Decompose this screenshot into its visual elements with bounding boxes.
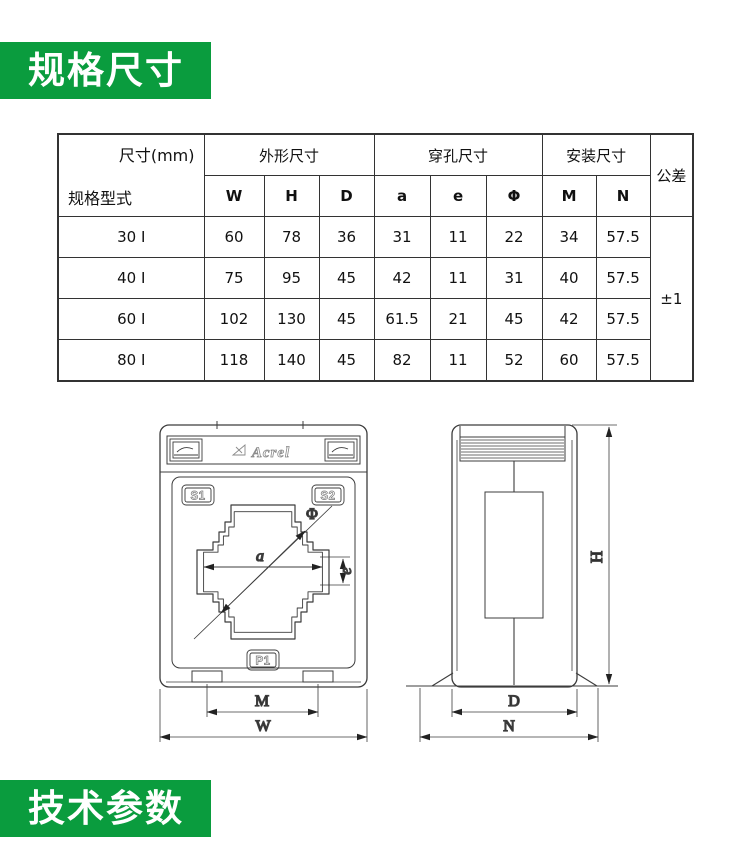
base-flange xyxy=(406,673,618,686)
terminal-hatch-band xyxy=(460,437,565,461)
value-cell: 36 xyxy=(319,217,374,258)
group-header-mounting: 安装尺寸 xyxy=(542,134,650,176)
value-cell: 60 xyxy=(542,340,596,382)
terminal-screw-right xyxy=(325,439,357,461)
value-cell: 11 xyxy=(430,217,486,258)
col-header-phi: Φ xyxy=(486,176,542,217)
value-cell: 11 xyxy=(430,340,486,382)
section-title-technical-parameters: 技术参数 xyxy=(0,780,211,837)
corner-label-model: 规格型式 xyxy=(68,185,132,209)
value-cell: 45 xyxy=(319,299,374,340)
brand-label: Acrel xyxy=(251,445,290,461)
col-header-a: a xyxy=(374,176,430,217)
col-header-d: D xyxy=(319,176,374,217)
value-cell: 57.5 xyxy=(596,340,650,382)
acrel-logo-icon xyxy=(233,445,245,455)
s2-label: S2 xyxy=(320,491,335,503)
table-row: 80 I 118 140 45 82 11 52 60 57.5 xyxy=(58,340,693,382)
col-header-e: e xyxy=(430,176,486,217)
dim-d-label: D xyxy=(508,693,520,710)
col-header-h: H xyxy=(264,176,319,217)
value-cell: 102 xyxy=(204,299,264,340)
table-row: 30 I 60 78 36 31 11 22 34 57.5 ±1 xyxy=(58,217,693,258)
side-view: H D N xyxy=(406,425,618,742)
dim-n-label: N xyxy=(503,718,515,735)
value-cell: 45 xyxy=(486,299,542,340)
s1-label: S1 xyxy=(190,491,205,503)
dim-e-label: e xyxy=(338,567,355,574)
table-row: 40 I 75 95 45 42 11 31 40 57.5 xyxy=(58,258,693,299)
value-cell: 130 xyxy=(264,299,319,340)
section-title-specifications: 规格尺寸 xyxy=(0,42,211,99)
col-header-n: N xyxy=(596,176,650,217)
core-section xyxy=(485,492,543,618)
technical-drawing: Acrel S1 S2 xyxy=(140,395,660,784)
value-cell: 21 xyxy=(430,299,486,340)
col-header-m: M xyxy=(542,176,596,217)
front-view: Acrel S1 S2 xyxy=(160,421,367,742)
value-cell: 57.5 xyxy=(596,299,650,340)
value-cell: 52 xyxy=(486,340,542,382)
terminal-screw-left xyxy=(170,439,202,461)
table-row: 60 I 102 130 45 61.5 21 45 42 57.5 xyxy=(58,299,693,340)
value-cell: 22 xyxy=(486,217,542,258)
value-cell: 45 xyxy=(319,340,374,382)
value-cell: 60 xyxy=(204,217,264,258)
value-cell: 57.5 xyxy=(596,258,650,299)
value-cell: 75 xyxy=(204,258,264,299)
value-cell: 140 xyxy=(264,340,319,382)
value-cell: 34 xyxy=(542,217,596,258)
ct-dimension-drawing: Acrel S1 S2 xyxy=(140,395,660,780)
value-cell: 45 xyxy=(319,258,374,299)
value-cell: 82 xyxy=(374,340,430,382)
mounting-foot-right xyxy=(303,671,333,682)
value-cell: 42 xyxy=(374,258,430,299)
dim-a-label: a xyxy=(256,548,264,565)
value-cell: 118 xyxy=(204,340,264,382)
dim-w-label: W xyxy=(255,718,271,735)
dim-m-label: M xyxy=(255,693,269,710)
model-cell: 60 I xyxy=(58,299,204,340)
group-header-hole: 穿孔尺寸 xyxy=(374,134,542,176)
value-cell: 61.5 xyxy=(374,299,430,340)
mounting-foot-left xyxy=(192,671,222,682)
model-cell: 40 I xyxy=(58,258,204,299)
dim-phi xyxy=(194,506,332,639)
col-header-w: W xyxy=(204,176,264,217)
group-header-outline: 外形尺寸 xyxy=(204,134,374,176)
product-spec-page: 规格尺寸 尺寸(mm) 规格型式 外形尺寸 穿孔尺寸 安装尺寸 公差 W xyxy=(0,0,750,844)
value-cell: 42 xyxy=(542,299,596,340)
dim-phi-label: Φ xyxy=(306,506,318,523)
value-cell: 78 xyxy=(264,217,319,258)
corner-label-size: 尺寸(mm) xyxy=(119,142,195,166)
model-cell: 30 I xyxy=(58,217,204,258)
value-cell: 31 xyxy=(486,258,542,299)
value-cell: 57.5 xyxy=(596,217,650,258)
value-cell: 40 xyxy=(542,258,596,299)
value-cell: 95 xyxy=(264,258,319,299)
table-corner-cell: 尺寸(mm) 规格型式 xyxy=(58,134,204,217)
p1-label: P1 xyxy=(255,656,270,668)
tolerance-value-cell: ±1 xyxy=(650,217,693,382)
header-tolerance: 公差 xyxy=(650,134,693,217)
value-cell: 11 xyxy=(430,258,486,299)
dimension-table: 尺寸(mm) 规格型式 外形尺寸 穿孔尺寸 安装尺寸 公差 W H D a e … xyxy=(57,133,694,382)
model-cell: 80 I xyxy=(58,340,204,382)
dim-h-label: H xyxy=(587,551,606,563)
value-cell: 31 xyxy=(374,217,430,258)
